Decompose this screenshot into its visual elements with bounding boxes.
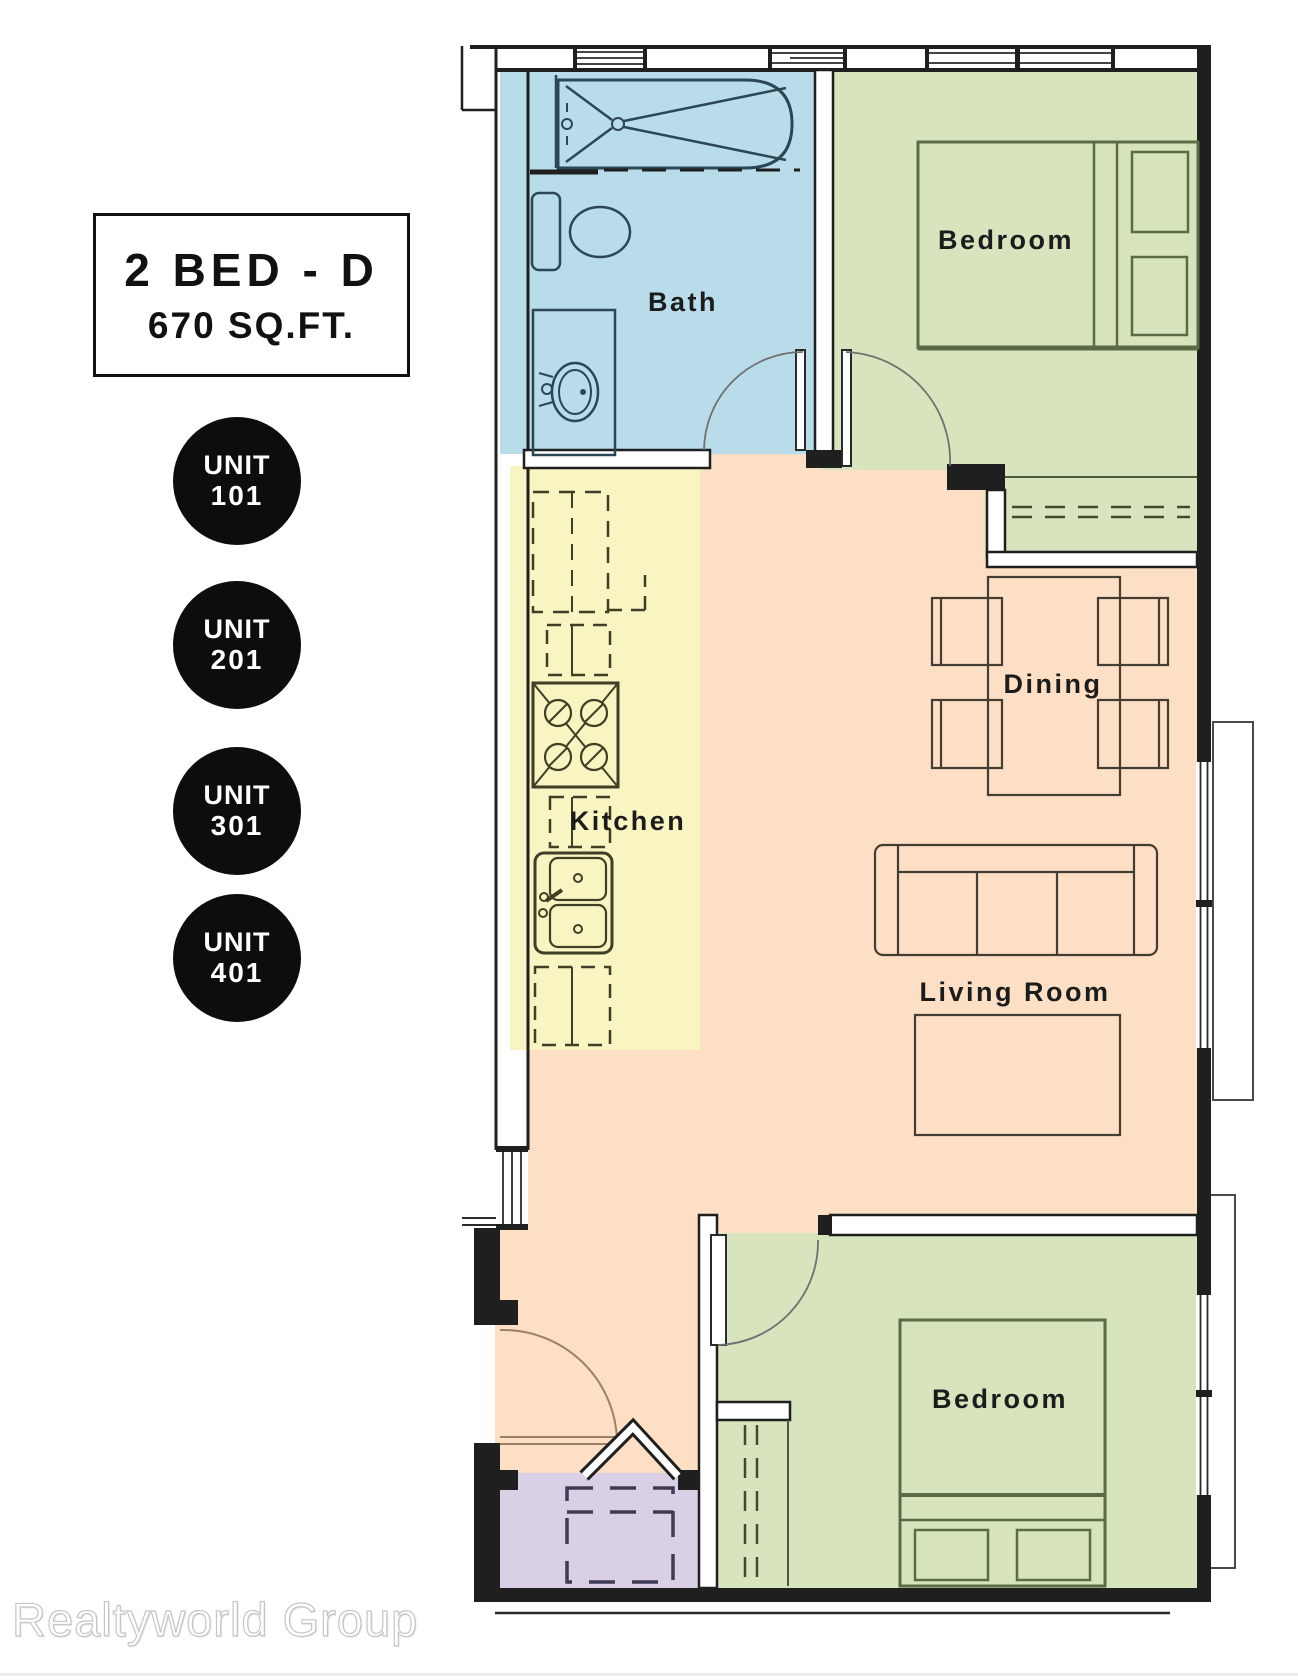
bath-door-leaf [796, 350, 805, 450]
window-icon [503, 1150, 521, 1228]
balcony-outline [1211, 1195, 1235, 1568]
left-wall-segment [474, 1443, 500, 1602]
room-label-bedroom1: Bedroom [938, 225, 1074, 255]
floorplan-drawing: Bath Bedroom Kitchen Dining Living Room … [0, 0, 1298, 1680]
bedroom1-floor [821, 58, 1205, 470]
bedroom2-door-leaf [711, 1235, 726, 1345]
floorplan-page: 2 BED - D 670 SQ.FT. UNIT 101 UNIT 201 U… [0, 0, 1298, 1680]
room-label-bath: Bath [648, 287, 718, 317]
bottom-wall [474, 1588, 1211, 1602]
left-wall-stub [495, 1300, 518, 1325]
closet-bottom-wall [987, 552, 1197, 567]
window-cap [496, 1224, 528, 1230]
image-bottom-edge [0, 1673, 1298, 1676]
room-label-living: Living Room [920, 977, 1111, 1007]
entry-jamb [495, 1470, 518, 1490]
window-cap [496, 1146, 528, 1152]
closet2-stub-wall [717, 1402, 790, 1420]
living-bedroom2-wall [830, 1215, 1197, 1235]
room-label-bedroom2: Bedroom [932, 1384, 1068, 1414]
wall-stub [947, 464, 1005, 490]
wall-stub [806, 450, 842, 468]
balcony-outline [1213, 722, 1253, 1100]
wall-stub [818, 1215, 832, 1235]
room-label-kitchen: Kitchen [570, 806, 687, 836]
window-divider [1196, 1390, 1212, 1397]
bedroom1-closet-floor [985, 466, 1205, 558]
bedroom1-door-leaf [842, 350, 851, 466]
window-divider [1196, 900, 1212, 907]
room-label-dining: Dining [1004, 669, 1103, 699]
closet-step-wall [987, 490, 1005, 556]
bath-bedroom-wall [815, 70, 833, 452]
watermark: Realtyworld Group [12, 1592, 418, 1647]
bath-bottom-wall [524, 450, 710, 468]
entry-floor [495, 1473, 701, 1590]
sink-drain [581, 390, 586, 395]
hall-floor [495, 1048, 700, 1480]
